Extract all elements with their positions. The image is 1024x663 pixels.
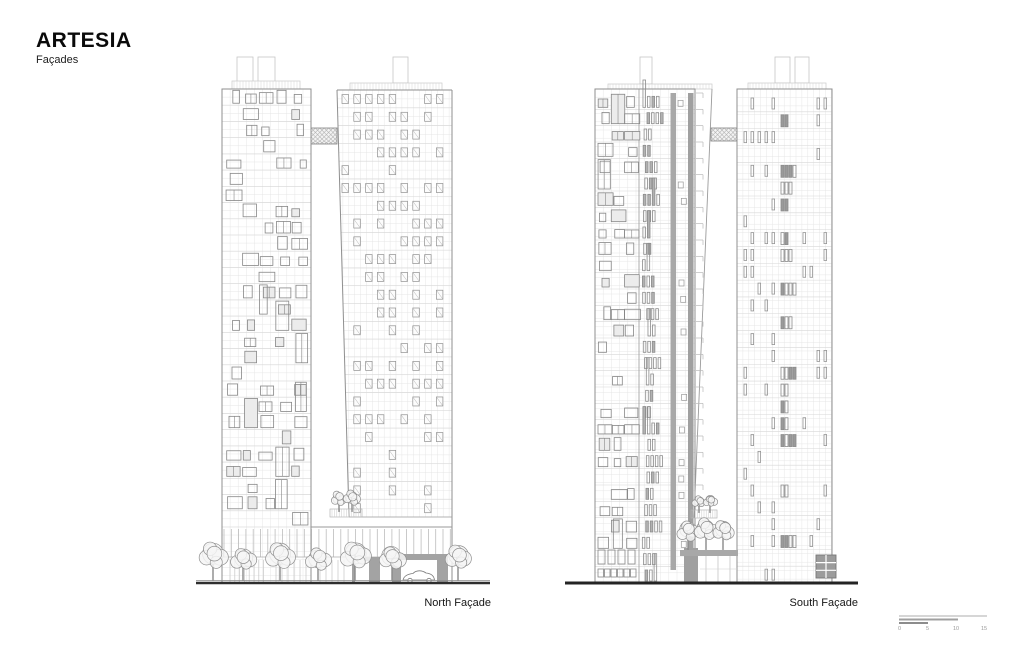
title-block: ARTESIA Façades xyxy=(36,30,132,66)
scale-bar: 0 5 10 15 xyxy=(897,612,993,636)
caption-south-facade: South Façade xyxy=(560,597,858,609)
drawing-sheet: { "title": { "project": "ARTESIA", "shee… xyxy=(0,0,1024,663)
sheet-subtitle: Façades xyxy=(36,54,132,66)
scale-tick-label: 15 xyxy=(981,626,987,632)
north-facade-elevation xyxy=(190,50,500,595)
scale-tick-label: 10 xyxy=(953,626,959,632)
sheet-title: ARTESIA xyxy=(36,30,132,52)
scale-tick-label: 0 xyxy=(898,626,901,632)
scale-tick-label: 5 xyxy=(926,626,929,632)
south-facade-elevation xyxy=(560,50,870,595)
caption-north-facade: North Façade xyxy=(190,597,491,609)
